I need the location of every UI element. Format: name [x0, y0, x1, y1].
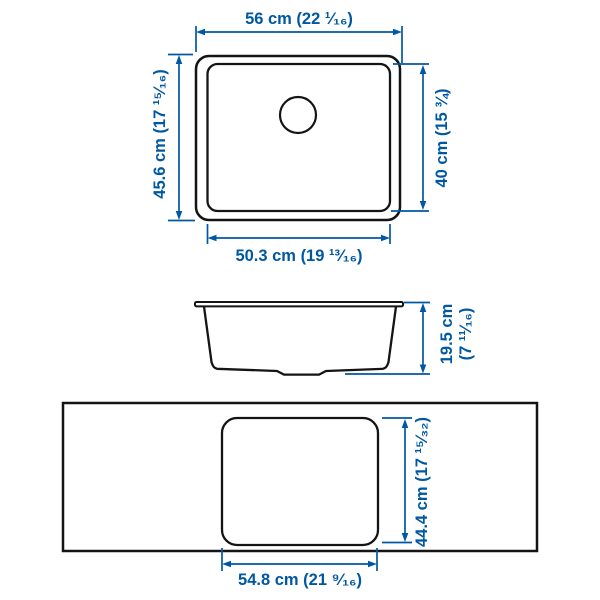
drain-icon	[280, 97, 316, 133]
arrowhead-up	[420, 303, 427, 312]
dim-cutout-depth: 44.4 cm (17 ¹⁵⁄₃₂)	[382, 417, 431, 547]
arrowhead-right	[393, 29, 402, 36]
sink-dimension-diagram: 56 cm (22 ¹⁄₁₆) 45.6 cm (17 ¹⁵⁄₁₆) 40 cm…	[0, 0, 600, 600]
sink-basin-outline	[208, 64, 391, 211]
arrowhead-right	[381, 235, 390, 242]
arrowhead-down	[420, 365, 427, 374]
arrowhead-left	[208, 235, 217, 242]
side-view	[195, 302, 403, 375]
overall-depth-label: 45.6 cm (17 ¹⁵⁄₁₆)	[151, 69, 169, 198]
arrowhead-down	[176, 211, 183, 220]
arrowhead-right	[368, 561, 377, 568]
basin-width-label: 50.3 cm (19 ¹³⁄₁₆)	[235, 247, 362, 265]
arrowhead-up	[176, 55, 183, 64]
sink-outer-rim-outline	[196, 56, 400, 220]
cutout-outline	[222, 418, 378, 545]
cutout-depth-label: 44.4 cm (17 ¹⁵⁄₃₂)	[413, 417, 431, 547]
countertop-outline	[63, 403, 537, 551]
arrowhead-up	[420, 65, 427, 74]
sink-rim-profile	[195, 302, 403, 306]
dim-side-height: 19.5 cm (7 ¹¹⁄₁₆)	[345, 303, 475, 375]
arrowhead-down	[402, 533, 409, 542]
side-height-in-label: (7 ¹¹⁄₁₆)	[457, 308, 475, 361]
dim-cutout-width: 54.8 cm (21 ⁹⁄₁₆)	[222, 548, 377, 589]
diagram-canvas: 56 cm (22 ¹⁄₁₆) 45.6 cm (17 ¹⁵⁄₁₆) 40 cm…	[0, 0, 600, 600]
cutout-width-label: 54.8 cm (21 ⁹⁄₁₆)	[238, 571, 362, 589]
dim-overall-depth: 45.6 cm (17 ¹⁵⁄₁₆)	[151, 55, 195, 221]
arrowhead-left	[196, 29, 205, 36]
sink-bowl-profile	[204, 307, 396, 375]
arrowhead-left	[222, 561, 231, 568]
dim-basin-width: 50.3 cm (19 ¹³⁄₁₆)	[208, 224, 391, 265]
overall-width-label: 56 cm (22 ¹⁄₁₆)	[245, 10, 353, 28]
arrowhead-up	[402, 419, 409, 428]
basin-depth-label: 40 cm (15 ¾)	[433, 88, 451, 187]
top-view	[196, 56, 400, 220]
arrowhead-down	[420, 201, 427, 210]
countertop-view	[63, 403, 537, 551]
side-height-cm-label: 19.5 cm	[438, 304, 456, 365]
